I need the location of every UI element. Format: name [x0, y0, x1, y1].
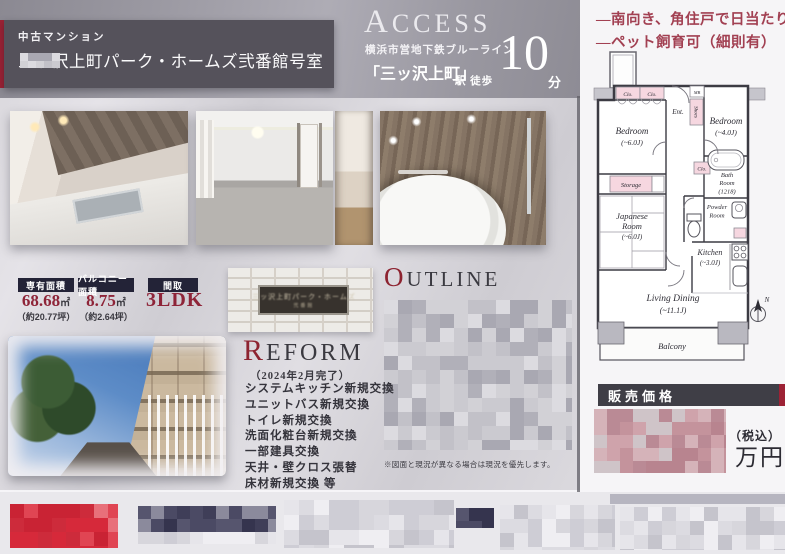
toilet-icon	[688, 221, 700, 237]
stove-icon	[732, 244, 748, 260]
access-heading: ACCESS	[364, 4, 491, 41]
reform-heading-initial: R	[243, 334, 266, 367]
reform-item: 一部建具交換	[245, 445, 395, 461]
reform-item: ユニットバス新規交換	[245, 398, 395, 414]
label-entrance: Ent.	[671, 108, 684, 116]
room-door-frame-2	[319, 123, 322, 187]
label-bath1: Bath	[721, 172, 733, 179]
footer-text-redacted-1	[284, 500, 454, 548]
label-closet1: Clo.	[623, 92, 632, 98]
label-kitchen-size: (~3.0J)	[700, 259, 721, 267]
room-closet-door	[300, 124, 318, 188]
reform-heading-rest: EFORM	[266, 340, 364, 366]
compass-icon: N	[751, 296, 770, 322]
access-heading-initial: A	[364, 4, 392, 40]
property-title: 三ッ沢上町パーク・ホームズ弐番館 号室	[18, 48, 334, 72]
vertical-divider	[577, 96, 580, 492]
property-header: 中古マンション 三ッ沢上町パーク・ホームズ弐番館 号室	[4, 20, 334, 88]
kitchen-photo	[10, 111, 188, 245]
flyer-canvas: 中古マンション 三ッ沢上町パーク・ホームズ弐番館 号室 ACCESS 横浜市営地…	[0, 0, 785, 554]
label-bath2: Room	[718, 180, 734, 187]
stat-value-balcony-area: 8.75㎡	[76, 291, 136, 311]
reform-completion-date: （2024年2月完了）	[250, 368, 350, 383]
room-curtain	[196, 120, 214, 198]
nameplate-line1: 三ッ沢上町パーク・ホームズ	[252, 292, 356, 302]
reform-list: システムキッチン新規交換 ユニットバス新規交換 トイレ新規交換 洗面化粧台新規交…	[245, 382, 395, 493]
walk-minutes: 10	[499, 27, 549, 77]
reform-item: 洗面化粧台新規交換	[245, 429, 395, 445]
photo-vignette	[8, 336, 226, 476]
hallway-photo	[335, 111, 373, 245]
label-kitchen: Kitchen	[697, 248, 723, 257]
nameplate-photo: 三ッ沢上町パーク・ホームズ 弐番館	[228, 268, 373, 332]
balcony-area-tsubo: （約2.64坪）	[72, 310, 140, 323]
porch	[610, 52, 636, 88]
property-category: 中古マンション	[18, 29, 334, 44]
stat-value-exclusive-area: 68.68㎡	[16, 291, 76, 311]
label-powder2: Room	[708, 213, 724, 220]
room-number-redacted	[20, 53, 60, 68]
north-label: N	[764, 296, 770, 304]
label-powder1: Powder	[706, 204, 728, 211]
kitchen-sink-icon	[733, 266, 747, 286]
washer-space	[734, 228, 746, 238]
floorplan-diagram: N Clo. Clo. MB Ent. Shoes Bedroom (~6.0J…	[586, 46, 785, 378]
price-unit: 万円	[735, 438, 785, 472]
toilet-tank-icon	[687, 214, 701, 221]
reform-item: トイレ新規交換	[245, 414, 395, 430]
access-heading-rest: CCESS	[392, 9, 492, 38]
reform-heading: REFORM	[243, 334, 364, 368]
footer-company-redacted	[138, 506, 276, 532]
pipe-space	[748, 88, 765, 100]
label-living-dining: Living Dining	[645, 294, 699, 304]
label-shoes: Shoes	[693, 106, 698, 118]
label-bedroom2-size: (~4.0J)	[715, 128, 737, 137]
label-mb: MB	[693, 90, 701, 95]
outline-heading: OUTLINE	[384, 262, 500, 293]
balcony-area-number: 8.75	[86, 291, 116, 310]
footer-company-sub-redacted	[138, 532, 276, 544]
nameplate-plaque: 三ッ沢上町パーク・ホームズ 弐番館	[258, 285, 349, 315]
label-bath-size: (1218)	[718, 189, 735, 196]
room-suffix: 号室	[289, 48, 323, 72]
bathroom-photo	[380, 111, 546, 245]
reform-item: 天井・壁クロス張替	[245, 461, 395, 477]
walk-minutes-unit: 分	[548, 72, 561, 91]
kitchen-downlights	[10, 111, 188, 245]
label-bedroom2: Bedroom	[710, 116, 743, 126]
reform-item: 床材新規交換 等	[245, 477, 395, 493]
label-bedroom1-size: (~6.0J)	[621, 138, 643, 147]
label-storage: Storage	[621, 182, 641, 189]
walk-label: 駅 徒歩	[455, 73, 493, 88]
feature-line-south: ―南向き、角住戸で日当たり良好	[596, 9, 785, 32]
price-label: 販売価格	[608, 386, 676, 405]
label-closet3: Clo.	[697, 167, 706, 173]
label-living-size: (~11.1J)	[660, 306, 687, 315]
footer-bar-redacted	[610, 494, 785, 504]
exclusive-area-number: 68.68	[22, 291, 60, 310]
floorplan-disclaimer: ※図面と現況が異なる場合は現況を優先します。	[384, 459, 555, 470]
outline-redacted-content	[384, 300, 572, 450]
access-subway-line: 横浜市営地下鉄ブルーライン	[365, 42, 515, 57]
label-balcony: Balcony	[658, 341, 686, 351]
label-japanese1: Japanese	[616, 211, 648, 221]
outline-heading-rest: UTLINE	[407, 267, 501, 291]
footer-text-redacted-2	[456, 508, 494, 528]
balcony-area-unit: ㎡	[116, 298, 126, 309]
footer-text-redacted-4	[620, 507, 785, 550]
label-japanese2: Room	[621, 221, 642, 231]
bath-lights	[380, 111, 546, 245]
label-bedroom1: Bedroom	[616, 126, 649, 136]
footer-logo-redacted	[10, 504, 118, 548]
room-door-frame	[297, 123, 300, 187]
price-amount-redacted	[594, 409, 726, 473]
exclusive-area-unit: ㎡	[60, 298, 70, 309]
living-room-photo	[196, 111, 333, 245]
label-closet2: Clo.	[647, 92, 656, 98]
label-japanese-size: (~6.0J)	[622, 233, 643, 241]
footer-text-redacted-3	[500, 505, 615, 550]
building-exterior-photo	[8, 336, 226, 476]
stat-label-balcony-area: バルコニー面積	[78, 278, 134, 292]
reform-item: システムキッチン新規交換	[245, 382, 395, 398]
price-bar-accent	[779, 384, 785, 406]
stat-label-exclusive-area: 専有面積	[18, 278, 74, 292]
outline-heading-initial: O	[384, 262, 407, 292]
exclusive-area-tsubo: （約20.77坪）	[12, 310, 80, 323]
price-bar: 販売価格	[598, 384, 785, 406]
nameplate-line2: 弐番館	[293, 302, 314, 309]
stat-value-layout: 3LDK	[146, 289, 200, 312]
